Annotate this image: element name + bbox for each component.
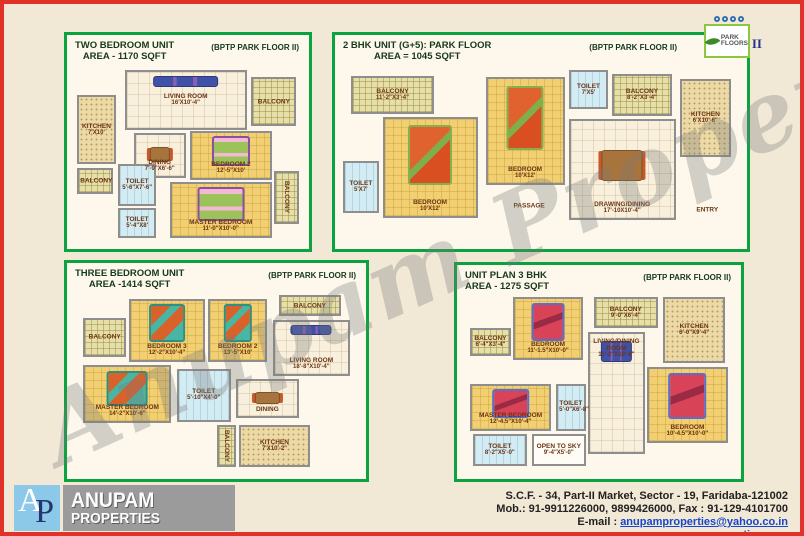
panel-brand: (BPTP PARK FLOOR II) [211,43,299,52]
room-label: TOILET8'-2"X5'-0" [476,443,524,457]
logo-dots [714,16,750,22]
room-toilet2: TOILET7'X5' [569,70,609,108]
room-label: LIVING ROOM18'-8"X10'-4" [276,357,346,371]
room-kitchen: KITCHEN7'X10'-2" [239,425,310,467]
leaf-icon [705,33,721,48]
room-label: TOILET5'-10"X4'-0" [180,388,228,402]
panel-title-line1: THREE BEDROOM UNIT [75,268,184,279]
contact-phones: Mob.: 91-9911226000, 9899426000, Fax : 9… [496,503,788,516]
room-label: TOILET5'X7' [346,180,376,194]
room-balcony-l: BALCONY [77,168,113,194]
panel-unit-3bhk: UNIT PLAN 3 BHK AREA - 1275 SQFT (BPTP P… [454,262,744,482]
floor-plan: BEDROOM11'-1.5"X10'-0"BALCONY6'-4"X3'-4"… [465,297,733,471]
dot-icon [738,16,744,22]
dot-icon [722,16,728,22]
room-balcony-tr: BALCONY [279,295,341,316]
dot-icon [730,16,736,22]
room-balcony-r2: BALCONY [274,171,299,223]
logo-suffix: II [752,36,762,52]
room-label: BEDROOM 212'-5"X10' [193,161,268,175]
room-label: MASTER BEDROOM14'-2"X10'-6" [86,404,168,418]
room-toilet1: TOILET5'-0"X6'-8" [556,384,585,431]
logo-word-properties: PROPERTIES [71,511,222,526]
floor-plan: LIVING ROOM16'X10'-4"BALCONYKITCHEN7'X10… [75,67,301,241]
room-label: KITCHEN6'X10'-6" [683,111,728,125]
room-label: BALCONY [254,98,293,105]
room-label: OPEN TO SKY9'-4"X5'-0" [535,443,583,457]
room-label: KITCHEN7'X10'-2" [242,439,307,453]
room-label: MASTER BEDROOM11'-0"X10'-0" [173,219,269,233]
bed-icon [107,371,148,406]
contact-website-line: www.anupamproperties.com [496,529,788,536]
room-label: KITCHEN6'-0"X9'-4" [666,323,722,337]
room-kitchen: KITCHEN6'-0"X9'-4" [663,297,725,363]
room-label: BALCONY [282,302,338,309]
room-label: TOILET5'-6"X7'-6" [121,178,153,192]
flyer-page: TWO BEDROOM UNIT AREA - 1170 SQFT (BPTP … [0,0,804,536]
bed-icon [224,304,252,342]
room-bedroom2: BEDROOM 213'-5"X10' [208,299,267,362]
room-label: DRAWING/DINING17'-10X10'-4" [572,201,673,215]
panel-title: THREE BEDROOM UNIT AREA -1414 SQFT [75,268,184,290]
floor-plan: BALCONY11'-2"X3'-4"BEDROOM10'X12'TOILET5… [343,67,739,241]
panel-title-line1: UNIT PLAN 3 BHK [465,270,549,281]
room-balcony1: BALCONY11'-2"X3'-4" [351,76,434,114]
room-label: BALCONY [86,334,122,341]
bed-icon [149,304,185,342]
website-link[interactable]: www.anupamproperties.com [638,529,788,536]
park-floors-logo-box: PARK FLOORS II [704,24,750,58]
room-kitchen: KITCHEN6'X10'-6" [680,79,731,157]
room-label: ENTRY [685,206,731,213]
panel-title-line2: AREA -1414 SQFT [75,279,184,290]
room-toilet: TOILET5'-10"X4'-0" [177,369,231,422]
panel-brand: (BPTP PARK FLOOR II) [589,43,677,52]
room-balcony-l: BALCONY [83,318,125,357]
panel-title-line1: 2 BHK UNIT (G+5): PARK FLOOR [343,40,491,51]
room-balcony-r1: BALCONY [251,77,296,126]
room-label: BEDROOM10'-4.5"X10'-0" [650,424,724,438]
room-dining: DINING [236,379,298,418]
panel-title-line1: TWO BEDROOM UNIT [75,40,174,51]
contact-email-line: E-mail : anupamproperties@yahoo.co.in [496,516,788,529]
room-label: BALCONY11'-2"X3'-4" [354,88,431,102]
room-entry: ENTRY [684,199,732,220]
bed-icon [408,125,452,185]
room-label: DINING7'-9"X6'-6" [137,159,183,173]
room-bedroom2: BEDROOM10'-4.5"X10'-0" [647,367,727,444]
room-kitchen: KITCHEN7'X10' [77,95,115,165]
room-master: MASTER BEDROOM14'-2"X10'-6" [83,365,171,423]
ap-monogram-icon: A P [14,485,60,531]
park-floors-logo-text: PARK FLOORS [721,35,748,47]
contact-block: S.C.F. - 34, Part-II Market, Sector - 19… [496,490,788,536]
room-label: TOILET5'-0"X6'-8" [559,400,582,414]
room-label: BALCONY [283,181,290,213]
room-drawing: DRAWING/DINING17'-10X10'-4" [569,119,676,220]
room-open-sky: OPEN TO SKY9'-4"X5'-0" [532,434,586,465]
dot-icon [714,16,720,22]
room-bedroom2: BEDROOM 212'-5"X10' [190,131,271,180]
room-bedroom1: BEDROOM11'-1.5"X10'-0" [513,297,583,360]
panel-title: UNIT PLAN 3 BHK AREA - 1275 SQFT [465,270,549,292]
room-passage: PASSAGE [501,196,556,217]
room-balcony2: BALCONY8'-2"X3'-4" [612,74,671,116]
room-label: BALCONY6'-4"X3'-4" [473,335,507,349]
room-balcony-t: BALCONY9'-0"X6'-4" [594,297,658,328]
room-label: BEDROOM 213'-5"X10' [211,343,264,357]
floor-plan: BALCONYBEDROOM 312'-2"X10'-4"BEDROOM 213… [75,295,358,471]
panel-title: TWO BEDROOM UNIT AREA - 1170 SQFT [75,40,174,62]
room-living: LIVING ROOM16'X10'-4" [125,70,247,129]
room-label: BALCONY9'-0"X6'-4" [597,306,655,320]
room-label: BEDROOM10'X12' [386,199,475,213]
room-livingdining: LIVING/DINING ROOM11'-2"X19'-8" [588,332,644,454]
panel-title: 2 BHK UNIT (G+5): PARK FLOOR AREA = 1045… [343,40,491,62]
panel-2bhk: 2 BHK UNIT (G+5): PARK FLOOR AREA = 1045… [332,32,750,252]
bed-icon [532,303,565,341]
room-balcony-l: BALCONY6'-4"X3'-4" [470,328,510,356]
room-label: MASTER BEDROOM12'-4.5"X10'-4" [473,412,547,426]
panel-title-line2: AREA = 1045 SQFT [343,51,491,62]
room-label: BEDROOM 312'-2"X10'-4" [132,343,202,357]
dining-table-icon [255,392,279,404]
panel-two-bedroom: TWO BEDROOM UNIT AREA - 1170 SQFT (BPTP … [64,32,312,252]
park-floors-logo: PARK FLOORS II [704,16,750,58]
email-label: E-mail : [577,516,620,528]
room-label: PASSAGE [502,203,555,210]
room-dining: DINING7'-9"X6'-6" [134,133,186,178]
room-bedroom3: BEDROOM 312'-2"X10'-4" [129,299,205,362]
logo-text-floors: FLOORS [721,41,748,47]
room-label: BEDROOM11'-1.5"X10'-0" [516,341,580,355]
room-master: MASTER BEDROOM12'-4.5"X10'-4" [470,384,550,431]
room-label: BALCONY [80,177,110,184]
room-label: LIVING/DINING ROOM11'-2"X19'-8" [591,338,641,359]
logo-wordmark: ANUPAM PROPERTIES [63,485,235,531]
logo-word-anupam: ANUPAM [71,491,222,511]
sofa-icon [153,76,219,87]
room-label: BALCONY [223,430,230,462]
sofa-icon [291,325,332,335]
panel-title-line2: AREA - 1275 SQFT [465,281,549,292]
panel-title-line2: AREA - 1170 SQFT [75,51,174,62]
room-toilet2: TOILET8'-2"X5'-0" [473,434,527,465]
panel-brand: (BPTP PARK FLOOR II) [643,273,731,282]
room-label: BALCONY8'-2"X3'-4" [615,88,668,102]
room-label: KITCHEN7'X10' [80,123,112,137]
logo-letter-p: P [35,493,54,531]
room-toilet1: TOILET5'X7' [343,161,379,213]
room-label: TOILET5'-4"X8' [121,216,153,230]
dining-table-icon [602,150,643,181]
room-master: MASTER BEDROOM11'-0"X10'-0" [170,182,272,238]
contact-address: S.C.F. - 34, Part-II Market, Sector - 19… [496,490,788,503]
room-label: TOILET7'X5' [572,83,606,97]
email-link[interactable]: anupamproperties@yahoo.co.in [620,516,788,528]
bed-icon [507,86,544,150]
panel-three-bedroom: THREE BEDROOM UNIT AREA -1414 SQFT (BPTP… [64,260,369,482]
room-label: DINING [239,406,295,413]
bed-icon [669,373,707,419]
panel-brand: (BPTP PARK FLOOR II) [268,271,356,280]
room-bedroom2: BEDROOM10'X12' [486,77,565,185]
room-label: LIVING ROOM16'X10'-4" [128,93,244,107]
bed-icon [197,187,244,221]
room-balcony-b: BALCONY [217,425,237,467]
room-toilet2: TOILET5'-4"X8' [118,208,156,238]
anupam-properties-logo: A P ANUPAM PROPERTIES [14,485,235,531]
room-bedroom1: BEDROOM10'X12' [383,117,478,218]
room-living: LIVING ROOM18'-8"X10'-4" [273,320,349,376]
room-label: BEDROOM10'X12' [489,166,562,180]
